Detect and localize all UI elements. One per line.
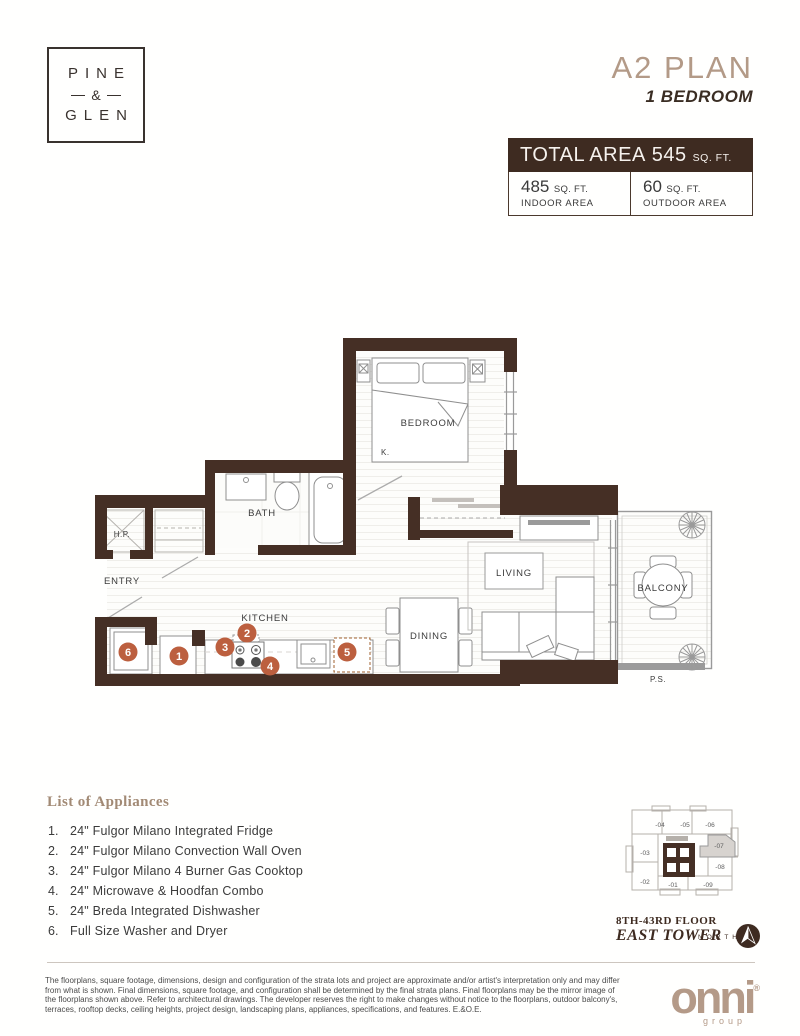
total-area-header: TOTAL AREA 545 SQ. FT. <box>508 138 753 172</box>
logo-ampersand: & <box>91 85 100 105</box>
marker-3: 3 <box>222 642 228 654</box>
outdoor-area-unit: SQ. FT. <box>666 184 700 195</box>
unit-02: -02 <box>640 879 650 886</box>
total-area-value: 545 <box>652 144 687 167</box>
total-area-unit: SQ. FT. <box>693 152 732 164</box>
tv-console <box>520 516 598 540</box>
bed-size-label: K. <box>381 448 390 457</box>
appliance-item: 6. Full Size Washer and Dryer <box>47 924 447 940</box>
pine-and-glen-logo: PINE & GLEN <box>47 47 145 143</box>
living-label: LIVING <box>496 568 532 579</box>
ps-label: P.S. <box>650 675 666 684</box>
total-area-label: TOTAL AREA <box>520 144 646 167</box>
bedroom-label: BEDROOM <box>401 418 456 429</box>
bed <box>372 358 468 462</box>
marker-6: 6 <box>125 647 131 659</box>
footer-divider <box>47 962 755 963</box>
registered-mark: ® <box>753 983 760 993</box>
indoor-area-unit: SQ. FT. <box>554 184 588 195</box>
marker-5: 5 <box>344 647 350 659</box>
outdoor-area-value: 60 <box>643 177 662 196</box>
appliance-item: 1. 24" Fulgor Milano Integrated Fridge <box>47 824 447 840</box>
plan-subtitle: 1 BEDROOM <box>646 87 753 107</box>
floorplan-drawing: BEDROOM K. BATH H.P. ENTRY KITCHEN DININ… <box>0 330 800 690</box>
onni-wordmark: onni® <box>628 968 760 1018</box>
outdoor-area-label: OUTDOOR AREA <box>643 198 752 209</box>
appliance-list-title: List of Appliances <box>47 794 169 811</box>
logo-line-2: GLEN <box>58 105 134 127</box>
appliance-item: 5. 24" Breda Integrated Dishwasher <box>47 904 447 920</box>
indoor-area-label: INDOOR AREA <box>521 198 630 209</box>
marker-1: 1 <box>176 651 182 663</box>
logo-dash-left <box>71 95 85 96</box>
appliance-item: 2. 24" Fulgor Milano Convection Wall Ove… <box>47 844 447 860</box>
building-keyplan: -04 -05 -06 -03 -07 -08 -02 -01 -09 <box>612 798 752 910</box>
floor-range-label: 8TH-43RD FLOOR <box>616 915 717 927</box>
area-breakdown: 485 SQ. FT. INDOOR AREA 60 SQ. FT. OUTDO… <box>508 172 753 216</box>
unit-04: -04 <box>655 822 665 829</box>
toilet-bowl <box>275 482 299 510</box>
unit-03: -03 <box>640 850 650 857</box>
stair-core <box>666 836 688 841</box>
appliance-item: 4. 24" Microwave & Hoodfan Combo <box>47 884 447 900</box>
outdoor-area-cell: 60 SQ. FT. OUTDOOR AREA <box>630 172 752 215</box>
hp-label: H.P. <box>114 530 131 539</box>
indoor-area-cell: 485 SQ. FT. INDOOR AREA <box>509 172 630 215</box>
logo-line-1: PINE <box>61 63 131 85</box>
onni-logo: onni® group <box>628 968 760 1026</box>
tv <box>528 520 590 525</box>
floorplan-sheet: PINE & GLEN A2 PLAN 1 BEDROOM TOTAL AREA… <box>0 0 800 1036</box>
plan-title: A2 PLAN <box>611 50 753 86</box>
unit-08: -08 <box>715 864 725 871</box>
unit-01: -01 <box>668 882 678 889</box>
unit-06: -06 <box>705 822 715 829</box>
marker-2: 2 <box>244 628 250 640</box>
north-compass-icon <box>734 922 762 950</box>
logo-dash-right <box>107 95 121 96</box>
logo-ampersand-row: & <box>71 85 120 105</box>
marker-4: 4 <box>267 661 274 673</box>
unit-05: -05 <box>680 822 690 829</box>
indoor-area-value: 485 <box>521 177 549 196</box>
kitchen-label: KITCHEN <box>241 613 288 624</box>
balcony-label: BALCONY <box>637 583 688 594</box>
total-area-box: TOTAL AREA 545 SQ. FT. 485 SQ. FT. INDOO… <box>508 138 753 216</box>
unit-07: -07 <box>714 843 724 850</box>
disclaimer-text: The floorplans, square footage, dimensio… <box>45 976 627 1014</box>
entry-label: ENTRY <box>104 576 140 587</box>
bath-label: BATH <box>248 508 276 519</box>
dining-label: DINING <box>410 631 448 642</box>
appliance-item: 3. 24" Fulgor Milano 4 Burner Gas Cookto… <box>47 864 447 880</box>
unit-09: -09 <box>703 882 713 889</box>
